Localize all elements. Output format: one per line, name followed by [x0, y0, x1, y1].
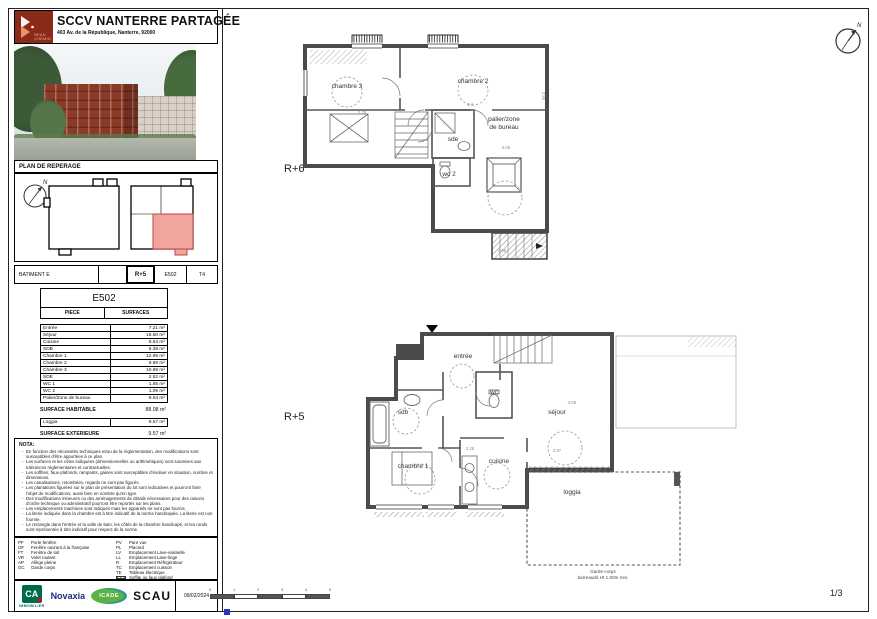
table-row: Chambre 112.99 m²: [41, 353, 167, 360]
title-wrap: SCCV NANTERRE PARTAGÉE 403 Av. de la Rép…: [53, 11, 244, 43]
soffite-hatch-swatch: [116, 576, 126, 580]
room-label: chambre 3: [332, 83, 363, 90]
nota-list: -En fonction des nécessités techniques e…: [19, 449, 213, 532]
table-cell-surface: 5.38 m²: [110, 346, 167, 352]
r6-outer-walls: [305, 46, 547, 231]
room-label: palier/zone: [488, 116, 520, 123]
dimension-label: 4.05: [568, 400, 577, 405]
dimension-label: 3.97: [553, 448, 562, 453]
table-cell-surface: 8.53 m²: [110, 339, 167, 345]
table-cell-surface: 2.52 m²: [110, 374, 167, 380]
table-row: Palier/Zone de bureau9.04 m²: [41, 395, 167, 402]
nota-item: -En fonction des nécessités techniques e…: [19, 449, 213, 459]
legend-col-2: PVPare vuePLPlacardLVEmplacement Lave-va…: [116, 540, 214, 577]
nota-dash: -: [19, 511, 26, 521]
table-cell-piece: Séjour: [41, 332, 110, 338]
lot-number: E502: [40, 288, 168, 308]
floor-label-r5: R+5: [284, 411, 305, 423]
scalebar-tick: 5: [329, 587, 331, 592]
drawing-sheet: BEAU CHEMIN SCCV NANTERRE PARTAGÉE 403 A…: [0, 0, 877, 619]
r5-loggia: [527, 472, 680, 565]
nota-item: -Les plantations figurées sur le plan de…: [19, 485, 213, 495]
room-label: séjour: [548, 409, 567, 416]
garde-corps-note: Garde-corps: [590, 569, 616, 574]
scale-segment: [258, 594, 282, 599]
scale-segment: [210, 594, 234, 599]
table-cell-surface: 9.57 m²: [110, 419, 167, 426]
road-decor: [14, 138, 196, 160]
r6-shaft: [330, 114, 368, 142]
batiment-row: BATIMENT E R+5 E502 T4: [14, 265, 218, 284]
r6-sde-fixtures: [435, 113, 470, 151]
scalebar-tick: 3: [281, 587, 283, 592]
table-cell-surface: 18.60 m²: [110, 332, 167, 338]
r5-stairs: [494, 335, 552, 363]
nota-item: -Les surfaces et les côtes indiquées (di…: [19, 459, 213, 469]
surface-table-rows: Entrée7.21 m²Séjour18.60 m²Cuisine8.53 m…: [40, 324, 168, 403]
logo-line2: CHEMIN: [34, 37, 51, 41]
r5-interior-walls: [368, 364, 527, 507]
highlighted-unit-balcony: [175, 249, 187, 255]
lot-cell: E502: [155, 266, 187, 283]
table-row: Entrée7.21 m²: [41, 325, 167, 332]
compass-icon: N: [828, 14, 872, 62]
vr-window-icon: [428, 35, 458, 43]
dimension-label: 3.4: [467, 102, 473, 107]
table-cell-piece: Cuisine: [41, 339, 110, 345]
nota-text: Les soffites, faux-plafonds, rampants, g…: [26, 470, 213, 480]
table-row: WC 11.85 m²: [41, 381, 167, 388]
table-cell-surface: 9.88 m²: [110, 360, 167, 366]
dimension-label: 2.66: [502, 145, 511, 150]
north-label: N: [43, 180, 48, 186]
surface-table: E502 PIECE SURFACES Entrée7.21 m²Séjour1…: [40, 288, 168, 440]
table-cell-piece: SDE: [41, 374, 110, 380]
table-cell-piece: Chambre 2: [41, 360, 110, 366]
room-label: de bureau: [489, 124, 519, 131]
surface-habitable-row: SURFACE HABITABLE 88.08 m²: [40, 403, 168, 416]
batiment-empty-cell: [99, 266, 127, 283]
logo-text: BEAU CHEMIN: [34, 33, 51, 41]
scalebar-tick: 0: [209, 587, 211, 592]
dimension-label: 2.96: [498, 248, 507, 253]
footer-logos: CA IMMOBILIER Novaxia ICADE SCAU 09/02/2…: [14, 580, 218, 612]
scalebar-tick: 1: [233, 587, 235, 592]
dimension-label: 2.55: [541, 92, 546, 101]
table-cell-surface: 10.89 m²: [110, 367, 167, 373]
surface-table-header: PIECE SURFACES: [40, 308, 168, 319]
table-row: Chambre 310.89 m²: [41, 367, 167, 374]
novaxia-logo: Novaxia: [51, 591, 86, 601]
surface-exterieure-value: 9.57 m²: [148, 431, 168, 437]
table-row: SDE2.52 m²: [41, 374, 167, 381]
nota-text: La literie indiquée dans la chambre est …: [26, 511, 213, 521]
nota-item: -La literie indiquée dans la chambre est…: [19, 511, 213, 521]
nota-text: Le rectangle dans l'entrée et la salle d…: [26, 522, 213, 532]
legend-label: Garde corps: [31, 565, 116, 570]
r5-sdb-fixtures: [370, 395, 420, 447]
table-cell-surface: 1.09 m²: [110, 388, 167, 394]
table-row: Séjour18.60 m²: [41, 332, 167, 339]
beau-chemin-logo: BEAU CHEMIN: [15, 11, 53, 43]
floor-cell: R+5: [127, 266, 155, 283]
nota-dash: -: [19, 496, 26, 506]
dimension-label: 2.76: [358, 110, 367, 115]
entrance-marker-icon: [426, 325, 438, 333]
nota-dash: -: [19, 485, 26, 495]
table-cell-piece: Palier/Zone de bureau: [41, 395, 110, 402]
table-cell-piece: WC 1: [41, 381, 110, 387]
scau-logo: SCAU: [133, 589, 171, 603]
scalebar-ticks: 012345: [210, 587, 334, 593]
scale-segment: [306, 594, 330, 599]
nota-item: -Le rectangle dans l'entrée et la salle …: [19, 522, 213, 532]
room-label: chambre 2: [458, 78, 489, 85]
table-cell-piece: Entrée: [41, 325, 110, 331]
table-cell-surface: 12.99 m²: [110, 353, 167, 359]
nota-title: NOTA:: [19, 442, 213, 448]
title-block-divider: [222, 8, 223, 612]
reperage-plan-drawing: N: [15, 174, 217, 261]
table-cell-piece: Chambre 3: [41, 367, 110, 373]
nota-dash: -: [19, 449, 26, 459]
scalebar-tick: 2: [257, 587, 259, 592]
compass-needle: [38, 187, 43, 192]
room-label: sde: [448, 136, 459, 143]
ca-logo-icon: CA: [22, 585, 42, 603]
norm-circles: [332, 75, 522, 215]
norm-circles: [393, 364, 582, 494]
legend-box: PFPorte fenêtreOFFenêtre ouvrant à la fr…: [14, 537, 218, 580]
title-block-header: BEAU CHEMIN SCCV NANTERRE PARTAGÉE 403 A…: [14, 10, 218, 44]
legend-col-1: PFPorte fenêtreOFFenêtre ouvrant à la fr…: [18, 540, 116, 577]
legend-key: GC: [18, 565, 31, 570]
nota-text: Les plantations figurées sur le plan de …: [26, 485, 213, 495]
vr-window-icon: [352, 35, 382, 43]
r6-stairs: [395, 112, 428, 158]
surface-table-ext-rows: Loggia9.57 m²: [40, 418, 168, 427]
table-row: SDB5.38 m²: [41, 346, 167, 353]
surface-exterieure-label: SURFACE EXTERIEURE: [40, 431, 99, 437]
nota-item: -Des modifications mineures ou des aména…: [19, 496, 213, 506]
nota-text: Les surfaces et les côtes indiquées (dim…: [26, 459, 213, 469]
col-piece: PIECE: [41, 308, 104, 318]
project-rendering-photo: [14, 44, 196, 160]
r5-door-arcs: [427, 392, 490, 486]
project-address: 403 Av. de la République, Nanterre, 9200…: [57, 30, 240, 36]
nota-dash: -: [19, 470, 26, 480]
north-label: N: [857, 23, 862, 29]
room-label: cuisine: [489, 458, 510, 465]
table-cell-surface: 7.21 m²: [110, 325, 167, 331]
blue-corner-mark: [224, 609, 230, 615]
r5-kitchen: [462, 456, 477, 504]
legend-item: GCGarde corps: [18, 565, 116, 570]
reperage-map: N: [14, 173, 218, 262]
scalebar-tick: 4: [305, 587, 307, 592]
r6-terrace: [492, 233, 547, 259]
floor-plan-r5: entréewcsdbséjourcuisinechambre 1loggia4…: [352, 318, 752, 598]
dimension-label: 2.28: [466, 446, 475, 451]
room-label: sdb: [398, 409, 409, 416]
floor-plan-r6: chambre 3chambre 2palier/zonede bureausd…: [278, 28, 578, 278]
table-row: WC 21.09 m²: [41, 388, 167, 395]
soffite-hatch: [310, 50, 367, 64]
nota-text: En fonction des nécessités techniques et…: [26, 449, 213, 459]
room-label: loggia: [563, 489, 581, 496]
nota-dash: -: [19, 522, 26, 532]
ca-immobilier-label: IMMOBILIER: [19, 604, 45, 608]
nota-item: -Les soffites, faux-plafonds, rampants, …: [19, 470, 213, 480]
reperage-title: PLAN DE REPERAGE: [14, 160, 218, 173]
table-cell-piece: Chambre 1: [41, 353, 110, 359]
room-label: wc: [489, 389, 499, 396]
table-row: Cuisine8.53 m²: [41, 339, 167, 346]
table-cell-piece: WC 2: [41, 388, 110, 394]
nota-dash: -: [19, 459, 26, 469]
page-number: 1/3: [830, 588, 843, 598]
table-row: Loggia9.57 m²: [41, 419, 167, 426]
room-label: chambre 1: [398, 463, 429, 470]
table-cell-piece: Loggia: [41, 419, 110, 426]
col-surfaces: SURFACES: [104, 308, 168, 318]
scale-bar: [210, 594, 330, 599]
type-cell: T4: [187, 266, 217, 283]
table-row: Chambre 29.88 m²: [41, 360, 167, 367]
highlighted-unit: [153, 214, 193, 249]
garde-corps-note: barreaudé Ht 1.00m min.: [578, 575, 629, 580]
building-a-outline: [49, 186, 119, 249]
scale-segment: [234, 594, 258, 599]
legend-key: TE: [116, 570, 129, 575]
project-title: SCCV NANTERRE PARTAGÉE: [57, 14, 240, 28]
credit-agricole-logo: CA IMMOBILIER: [19, 585, 45, 608]
room-label: wc 2: [441, 171, 456, 178]
surface-habitable-label: SURFACE HABITABLE: [40, 407, 96, 413]
nota-text: Des modifications mineures ou des aménag…: [26, 496, 213, 506]
icade-logo: ICADE: [91, 588, 127, 604]
r5-outer-walls: [368, 334, 612, 507]
table-cell-piece: SDB: [41, 346, 110, 352]
room-label: entrée: [454, 353, 473, 360]
table-cell-surface: 1.85 m²: [110, 381, 167, 387]
r5-wall-block: [396, 344, 420, 357]
adjacent-structure: [616, 336, 736, 428]
batiment-cell: BATIMENT E: [15, 266, 99, 283]
r5-window-gaps: [374, 504, 504, 518]
nota-box: NOTA: -En fonction des nécessités techni…: [14, 438, 218, 537]
surface-habitable-value: 88.08 m²: [146, 407, 168, 413]
scale-segment: [282, 594, 306, 599]
table-cell-surface: 9.04 m²: [110, 395, 167, 402]
